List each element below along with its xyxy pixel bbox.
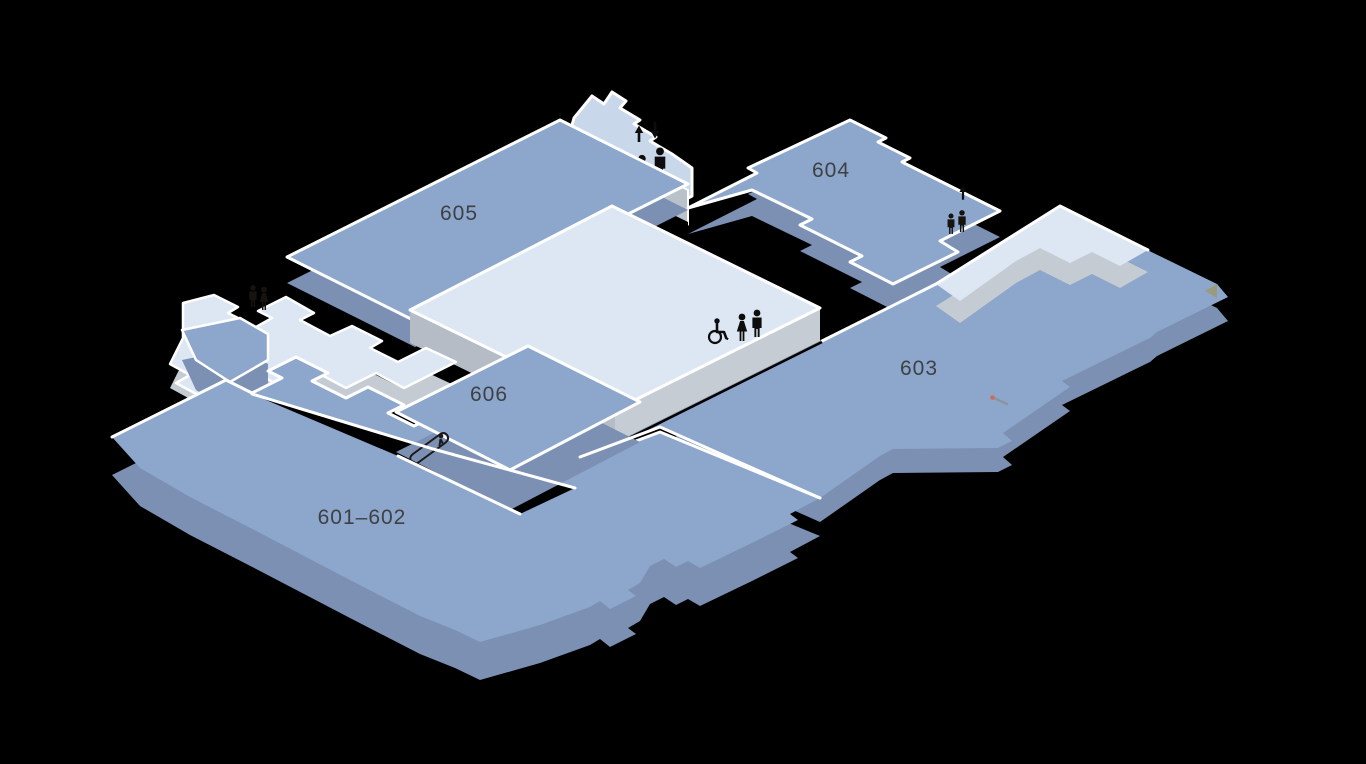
room-604-label: 604 [812,159,850,182]
room-605-label: 605 [440,202,478,225]
room-603-label: 603 [900,357,938,380]
room-601-602-label: 601–602 [318,506,407,529]
floor-map-canvas: 605 604 603 [0,0,1366,764]
room-606-label: 606 [470,383,508,406]
